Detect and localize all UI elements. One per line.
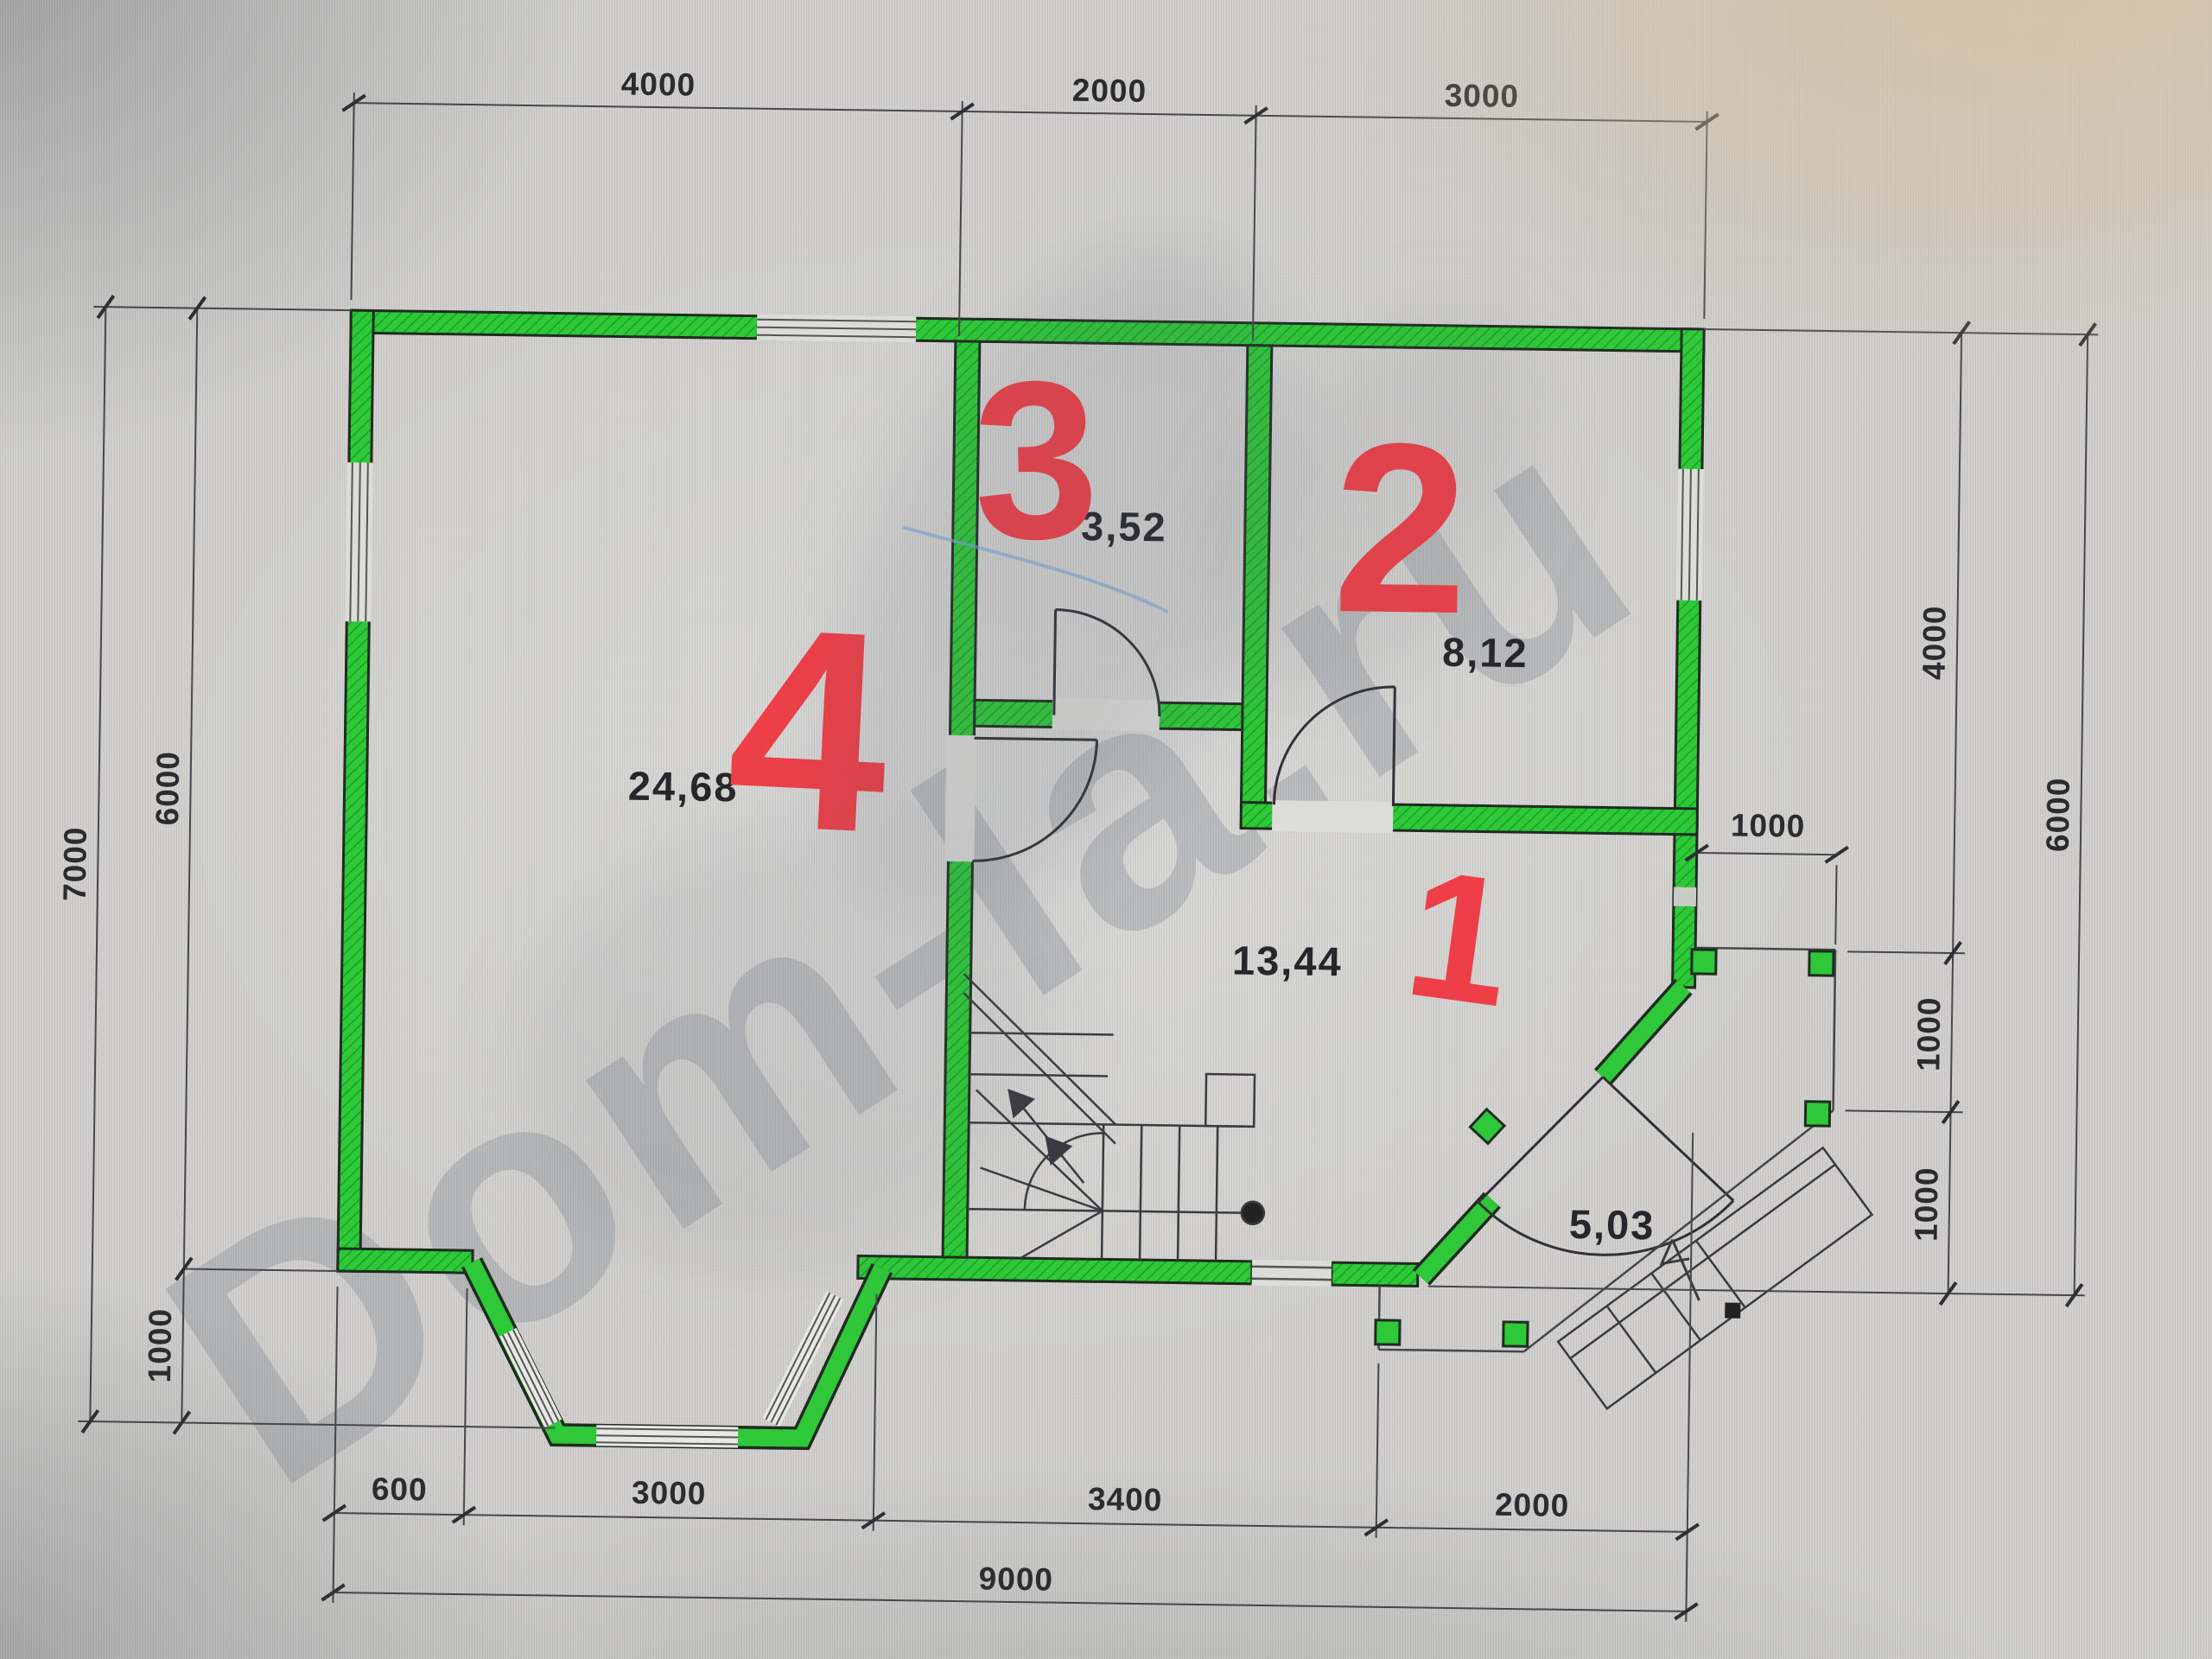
window-top-wall (757, 315, 916, 343)
window-right-wall (1676, 469, 1704, 601)
dim-right-1000a: 1000 (1910, 996, 1947, 1071)
dim-porch-1000: 1000 (1731, 807, 1806, 843)
dim-top-3000: 3000 (1444, 78, 1519, 114)
door-room4 (972, 738, 1096, 862)
stair-break-lines (962, 974, 1118, 1143)
area-porch: 5,03 (1569, 1201, 1656, 1248)
window-left-wall (345, 462, 373, 621)
dim-left-1000: 1000 (142, 1308, 178, 1383)
steps-post-dot (1725, 1302, 1740, 1318)
stair-newel-post (1242, 1202, 1264, 1224)
stair-winders (974, 1090, 1104, 1259)
floor-plan-drawing: 4000 2000 3000 7000 6000 1000 4000 1000 … (0, 0, 2212, 1659)
dim-bottom-9000: 9000 (978, 1560, 1053, 1597)
area-room4: 24,68 (627, 763, 738, 810)
screen-photo: Dom-la.ru (0, 0, 2212, 1659)
wall-room3-room2 (1241, 346, 1271, 804)
wall-bottom-right (1332, 1262, 1418, 1286)
area-room1: 13,44 (1232, 937, 1343, 984)
mark-room4: 4 (721, 566, 897, 893)
door-openings (939, 697, 1395, 1287)
door-room2 (1274, 685, 1395, 806)
dim-top-4000: 4000 (621, 66, 696, 102)
window-right-small-gap (1674, 887, 1696, 906)
dim-bottom-600: 600 (372, 1471, 428, 1508)
dim-right-4000: 4000 (1916, 605, 1953, 680)
wall-bottom-left (338, 1249, 473, 1273)
dim-bottom-2000: 2000 (1495, 1487, 1570, 1523)
dim-left-6000: 6000 (149, 751, 186, 826)
mark-room1: 1 (1395, 830, 1523, 1046)
wall-bottom-mid (858, 1255, 1252, 1283)
dim-top-2000: 2000 (1072, 73, 1147, 109)
dim-right-6000: 6000 (2040, 777, 2076, 852)
entrance-steps (1558, 1147, 1872, 1408)
bay-glazing-bottom (596, 1425, 738, 1447)
dim-bottom-3400: 3400 (1088, 1481, 1163, 1517)
bay-window (469, 1262, 882, 1450)
mark-room2: 2 (1332, 393, 1470, 664)
dim-left-7000: 7000 (57, 826, 93, 901)
red-room-numbers: 3 2 4 1 (720, 329, 1531, 1046)
dim-right-1000b: 1000 (1908, 1166, 1944, 1242)
steps-arrow (1661, 1239, 1700, 1300)
staircase (960, 974, 1268, 1262)
bay-glazing-left (501, 1330, 560, 1427)
stair-direction-arrow (1007, 1090, 1084, 1183)
wall-left (338, 310, 374, 1271)
mark-room3: 3 (971, 334, 1102, 588)
dim-bottom-3000: 3000 (632, 1475, 707, 1511)
